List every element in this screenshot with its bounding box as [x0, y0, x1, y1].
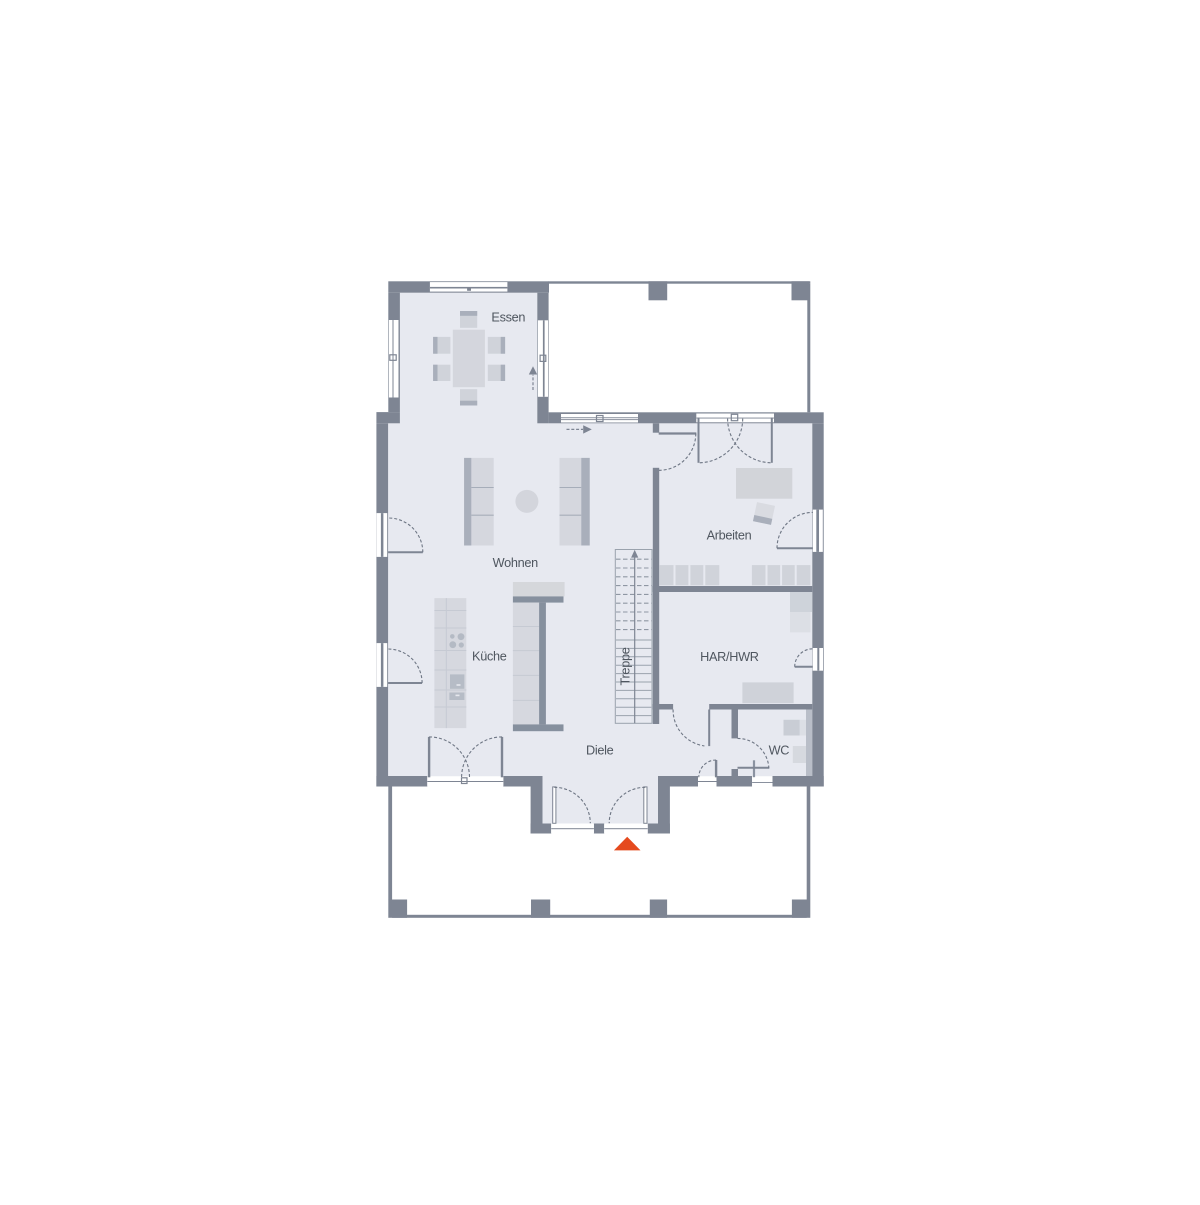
svg-text:Diele: Diele: [586, 743, 614, 757]
svg-text:Arbeiten: Arbeiten: [707, 529, 752, 543]
svg-text:WC: WC: [769, 743, 790, 757]
svg-text:Treppe: Treppe: [619, 647, 633, 685]
svg-text:Wohnen: Wohnen: [493, 556, 538, 570]
svg-text:HAR/HWR: HAR/HWR: [700, 650, 759, 664]
svg-text:Küche: Küche: [472, 649, 507, 663]
svg-text:Essen: Essen: [491, 311, 525, 325]
